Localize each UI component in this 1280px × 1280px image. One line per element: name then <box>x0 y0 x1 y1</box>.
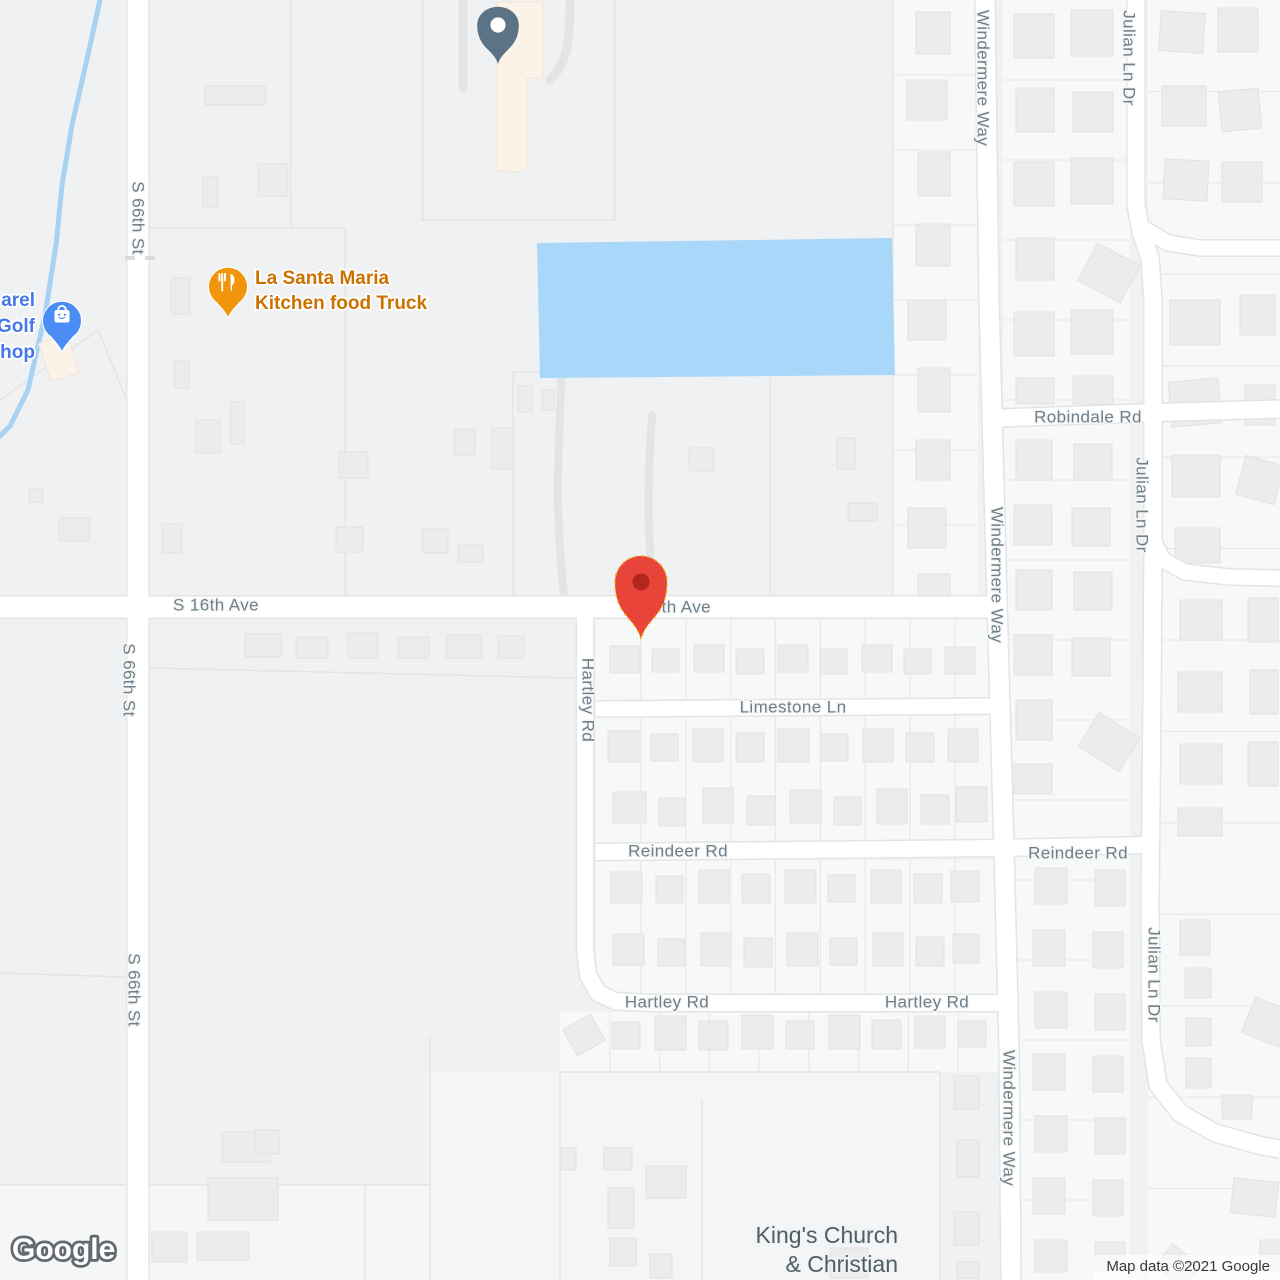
building <box>542 390 554 410</box>
building <box>787 933 818 966</box>
street-label: S 66th St <box>125 953 144 1027</box>
building <box>1014 162 1054 206</box>
building <box>790 790 821 823</box>
building <box>1162 86 1206 126</box>
building <box>613 934 644 965</box>
building <box>651 734 678 761</box>
building <box>837 438 855 469</box>
building <box>1175 528 1220 563</box>
building <box>1186 1058 1211 1088</box>
building <box>877 789 907 824</box>
building <box>921 795 949 824</box>
building <box>957 1140 979 1177</box>
building <box>650 1254 672 1278</box>
street-label: Julian Ln Dr <box>1145 927 1164 1023</box>
building <box>1186 1018 1211 1046</box>
building <box>1095 870 1125 906</box>
building <box>1035 868 1067 904</box>
building <box>1014 505 1052 545</box>
building <box>699 870 729 903</box>
building <box>907 80 947 120</box>
building <box>742 1015 773 1049</box>
building <box>152 1232 187 1262</box>
google-logo[interactable]: Google <box>10 1229 140 1276</box>
building <box>458 545 483 562</box>
building <box>231 402 244 444</box>
shopping-bag-icon <box>55 310 70 323</box>
building <box>1180 920 1210 955</box>
building <box>1033 1054 1065 1090</box>
street-label: Julian Ln Dr <box>1120 10 1139 106</box>
church-label[interactable]: King's Church <box>756 1222 898 1248</box>
building <box>948 729 978 762</box>
building <box>646 1166 686 1198</box>
building <box>1180 600 1222 640</box>
building <box>1035 1116 1067 1152</box>
building <box>1218 8 1258 52</box>
building <box>446 635 482 658</box>
building <box>918 574 950 598</box>
map-viewport[interactable]: S 66th StS 66th StS 66th StS 16th AveS 1… <box>0 0 1280 1280</box>
building <box>611 872 642 903</box>
building <box>1073 92 1113 132</box>
building <box>742 874 770 903</box>
building <box>1178 808 1222 836</box>
building <box>829 1015 860 1049</box>
building <box>659 798 685 826</box>
building <box>916 937 944 966</box>
building <box>245 634 281 657</box>
building <box>1180 744 1222 784</box>
building <box>1033 1178 1065 1214</box>
street-label: S 16th Ave <box>173 596 259 615</box>
building <box>915 1016 945 1048</box>
building <box>916 12 950 54</box>
street-label: S 66th St <box>129 181 148 255</box>
building <box>786 1021 814 1049</box>
street-label: Reindeer Rd <box>628 842 728 861</box>
building <box>610 1238 636 1266</box>
building <box>171 278 190 314</box>
building <box>1072 638 1110 676</box>
building <box>916 224 950 266</box>
building <box>455 429 475 455</box>
building <box>560 1148 576 1170</box>
building <box>1230 1178 1278 1218</box>
street-label: Windermere Way <box>974 10 993 146</box>
building <box>736 649 764 674</box>
building <box>701 933 731 966</box>
building <box>613 792 646 823</box>
building <box>203 177 218 207</box>
building <box>29 489 43 502</box>
building <box>610 646 640 673</box>
building <box>1222 162 1262 202</box>
shop-label[interactable]: arel <box>1 290 35 311</box>
building <box>208 1178 278 1220</box>
building <box>339 452 368 478</box>
building <box>1178 672 1222 712</box>
bag-face-icon <box>58 314 60 316</box>
building <box>1033 930 1065 966</box>
building <box>1222 1095 1252 1119</box>
building <box>1240 295 1275 335</box>
building <box>863 729 893 762</box>
building <box>423 529 448 553</box>
building <box>908 300 946 340</box>
building <box>518 386 532 412</box>
building <box>1071 158 1113 204</box>
building <box>196 420 220 453</box>
street-label: Hartley Rd <box>579 658 598 742</box>
street-label: Hartley Rd <box>885 993 969 1012</box>
restaurant-label[interactable]: Kitchen food Truck <box>255 293 428 314</box>
building <box>336 527 363 552</box>
building <box>1014 312 1054 356</box>
building <box>162 524 182 553</box>
building <box>1218 88 1262 132</box>
building <box>820 649 847 674</box>
building <box>296 637 328 658</box>
building <box>871 870 901 903</box>
building <box>1073 376 1113 404</box>
street-label: Robindale Rd <box>1034 408 1142 427</box>
building <box>828 875 855 902</box>
building <box>778 729 809 762</box>
building <box>958 1021 986 1047</box>
building <box>492 428 513 469</box>
building <box>1016 88 1054 132</box>
google-logo-text: Google <box>12 1233 115 1266</box>
building <box>848 503 877 521</box>
building <box>689 448 714 471</box>
shop-label[interactable]: Golf <box>0 316 36 337</box>
building <box>906 733 934 762</box>
building <box>778 645 808 672</box>
building <box>1072 508 1110 546</box>
shop-label[interactable]: hop <box>0 342 35 363</box>
building <box>655 1016 686 1050</box>
building <box>604 1148 632 1170</box>
building <box>1071 10 1113 56</box>
building <box>1095 994 1125 1030</box>
church-label[interactable]: & Christian <box>786 1251 898 1277</box>
building <box>699 1021 728 1050</box>
building <box>205 86 265 105</box>
building <box>821 734 848 761</box>
building <box>945 647 975 674</box>
building <box>953 934 979 963</box>
street-label: S 66th St <box>120 643 139 717</box>
building <box>1016 440 1052 480</box>
building <box>1074 444 1112 480</box>
building <box>918 152 950 196</box>
building <box>862 645 892 672</box>
building <box>656 876 683 903</box>
building <box>1014 635 1052 675</box>
building <box>1014 14 1054 58</box>
street-label: Reindeer Rd <box>1028 844 1128 863</box>
building <box>954 1212 979 1245</box>
building <box>1248 742 1278 786</box>
building <box>398 637 429 658</box>
building <box>652 649 679 672</box>
building <box>957 1262 979 1278</box>
building <box>694 645 724 672</box>
building <box>693 729 723 762</box>
building <box>956 787 987 822</box>
building <box>608 1188 634 1228</box>
building <box>612 1022 640 1049</box>
map-attribution: Map data ©2021 Google <box>1094 1255 1280 1280</box>
pond-water <box>537 238 895 378</box>
building <box>1035 992 1067 1028</box>
building <box>348 633 377 658</box>
building <box>1071 310 1113 354</box>
building <box>918 368 950 412</box>
marker-hole <box>490 17 505 32</box>
building <box>59 518 90 541</box>
building <box>1016 238 1054 280</box>
building <box>1014 764 1052 794</box>
building <box>1250 670 1278 714</box>
building <box>1093 932 1123 968</box>
building <box>1159 11 1206 54</box>
building <box>834 797 861 825</box>
building <box>1016 570 1052 610</box>
building <box>830 938 857 965</box>
building <box>258 164 288 196</box>
building <box>954 1076 979 1109</box>
building <box>951 871 979 902</box>
street-label: Windermere Way <box>1000 1050 1019 1186</box>
street-label: Julian Ln Dr <box>1133 457 1152 553</box>
building <box>197 1232 249 1260</box>
marker-dot <box>633 574 650 591</box>
building <box>1095 1118 1125 1154</box>
building <box>908 508 946 548</box>
bridge-mark <box>145 256 155 260</box>
building <box>1248 598 1278 642</box>
building <box>1074 572 1112 610</box>
building <box>1016 700 1052 740</box>
building <box>904 649 931 674</box>
building <box>1185 968 1211 998</box>
building <box>873 933 903 966</box>
building <box>175 361 189 388</box>
building <box>703 788 733 823</box>
building <box>1016 378 1054 404</box>
restaurant-label[interactable]: La Santa Maria <box>255 268 390 289</box>
building <box>736 733 764 762</box>
building <box>608 731 639 762</box>
building <box>916 440 950 480</box>
building <box>1093 1056 1123 1092</box>
building <box>785 870 816 903</box>
building <box>498 636 524 658</box>
building <box>1163 159 1209 201</box>
bag-face-icon <box>64 314 66 316</box>
building <box>255 1130 279 1154</box>
building <box>1172 455 1220 497</box>
building <box>872 1020 901 1049</box>
street-label: Hartley Rd <box>625 993 709 1012</box>
building <box>1170 300 1220 345</box>
map-canvas[interactable]: S 66th StS 66th StS 66th StS 16th AveS 1… <box>0 0 1280 1280</box>
building <box>747 796 775 825</box>
building <box>658 939 685 966</box>
street-label: Windermere Way <box>988 507 1007 643</box>
building <box>744 938 772 967</box>
street-label: Limestone Ln <box>740 698 847 717</box>
building <box>1035 1240 1067 1272</box>
building <box>914 874 942 903</box>
building <box>1093 1180 1123 1216</box>
bridge-mark <box>125 256 135 260</box>
